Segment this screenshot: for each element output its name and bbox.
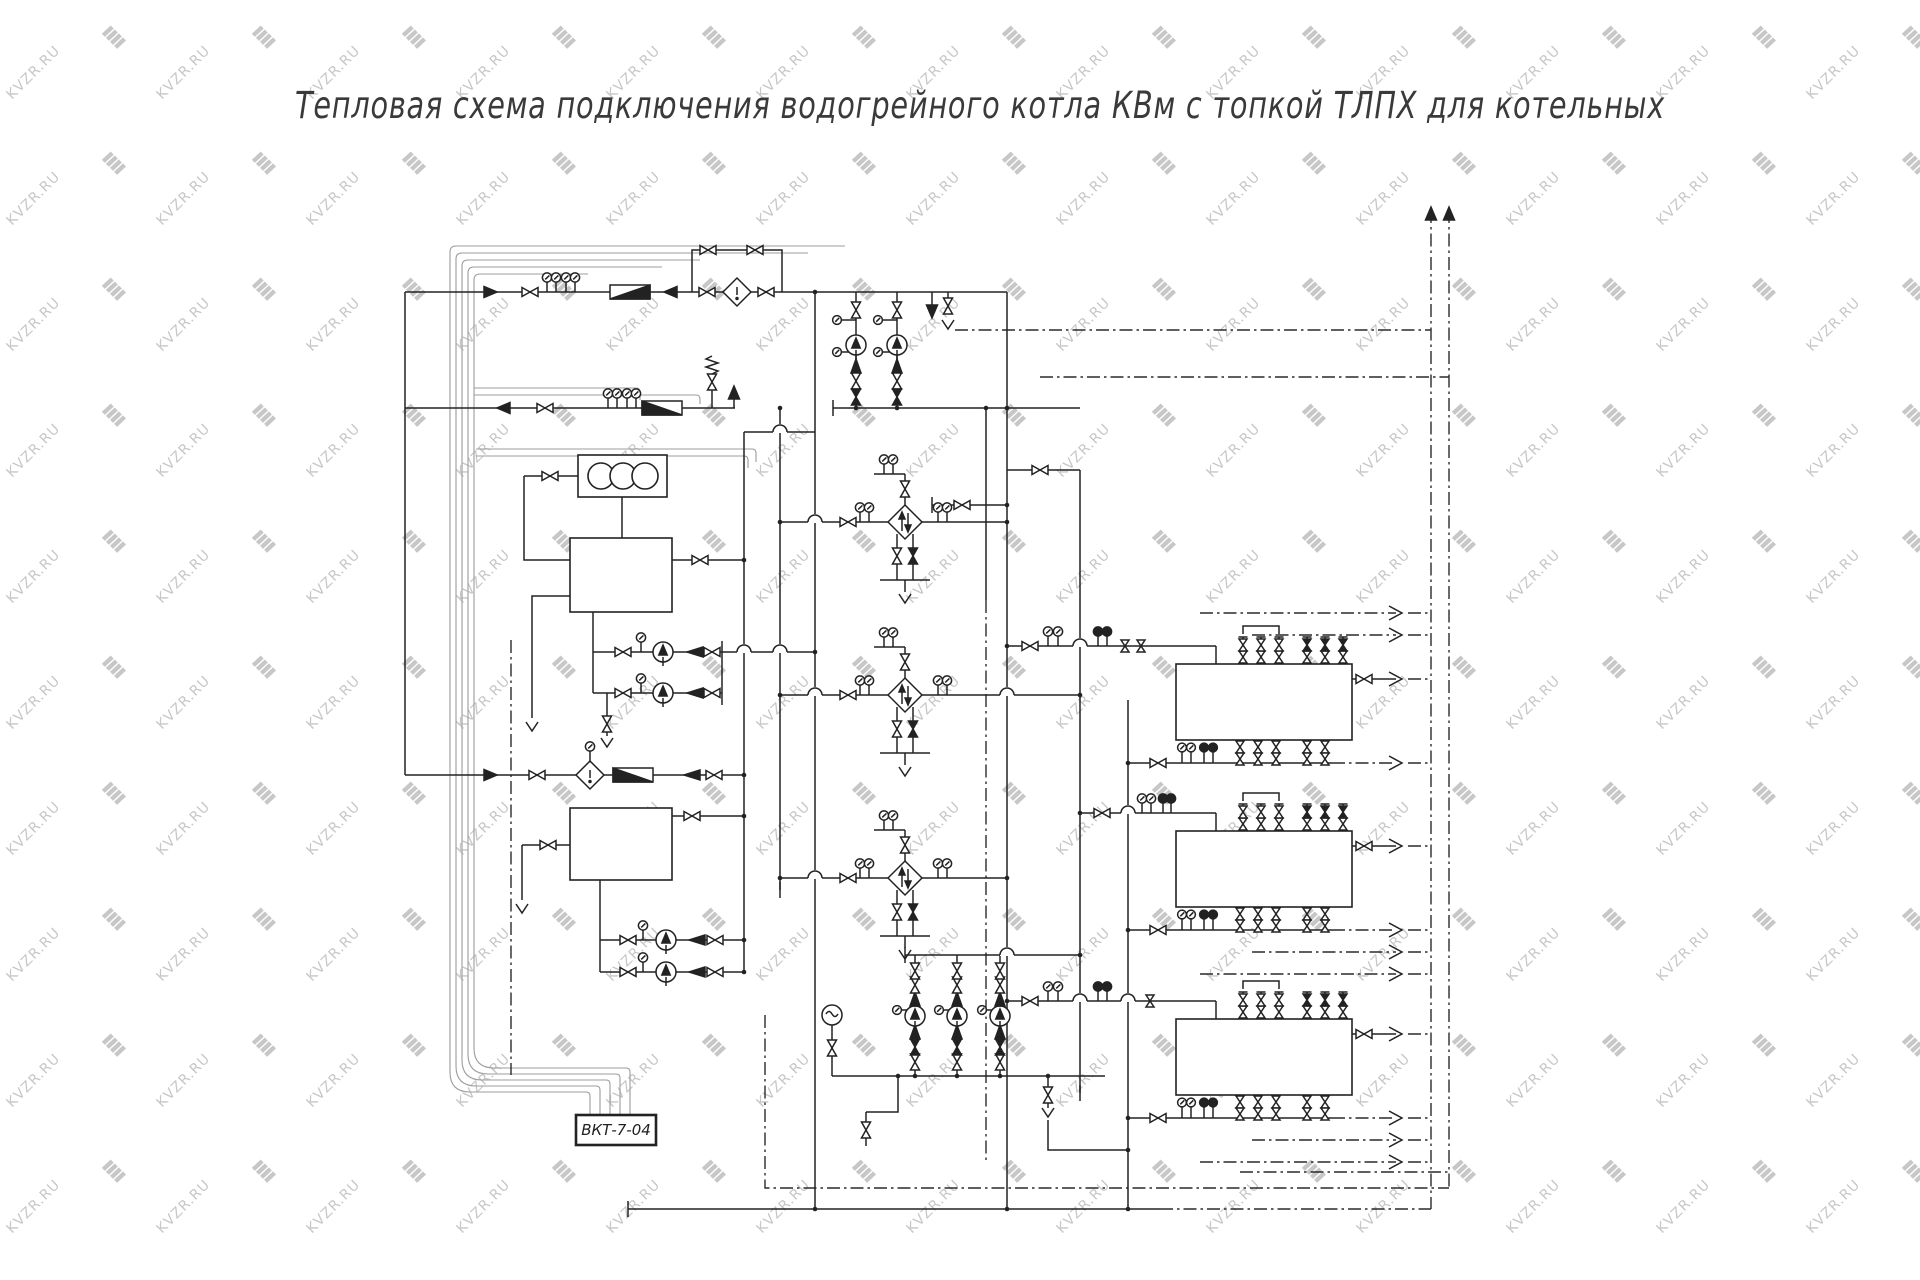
- drawing-sheet: KVZR.RU #wm: [0, 0, 1920, 1280]
- boiler-2: [570, 808, 672, 880]
- flow-meter-3: [613, 768, 653, 782]
- flow-meter-1: [610, 285, 650, 299]
- consumer-unit-3: [1176, 1019, 1352, 1095]
- watermark-layer: [0, 0, 1920, 1280]
- boiler-1: [570, 538, 672, 612]
- burner-unit: [578, 455, 667, 497]
- flow-meter-2: [642, 401, 682, 415]
- consumer-unit-1: [1176, 664, 1352, 740]
- schematic-canvas: KVZR.RU #wm: [0, 0, 1920, 1280]
- controller-box: ВКТ-7-04: [576, 1115, 656, 1145]
- expansion-tank: [822, 1005, 842, 1025]
- consumer-unit-2: [1176, 831, 1352, 907]
- drawing-title: Тепловая схема подключения водогрейного …: [295, 84, 1665, 127]
- controller-label: ВКТ-7-04: [581, 1121, 651, 1139]
